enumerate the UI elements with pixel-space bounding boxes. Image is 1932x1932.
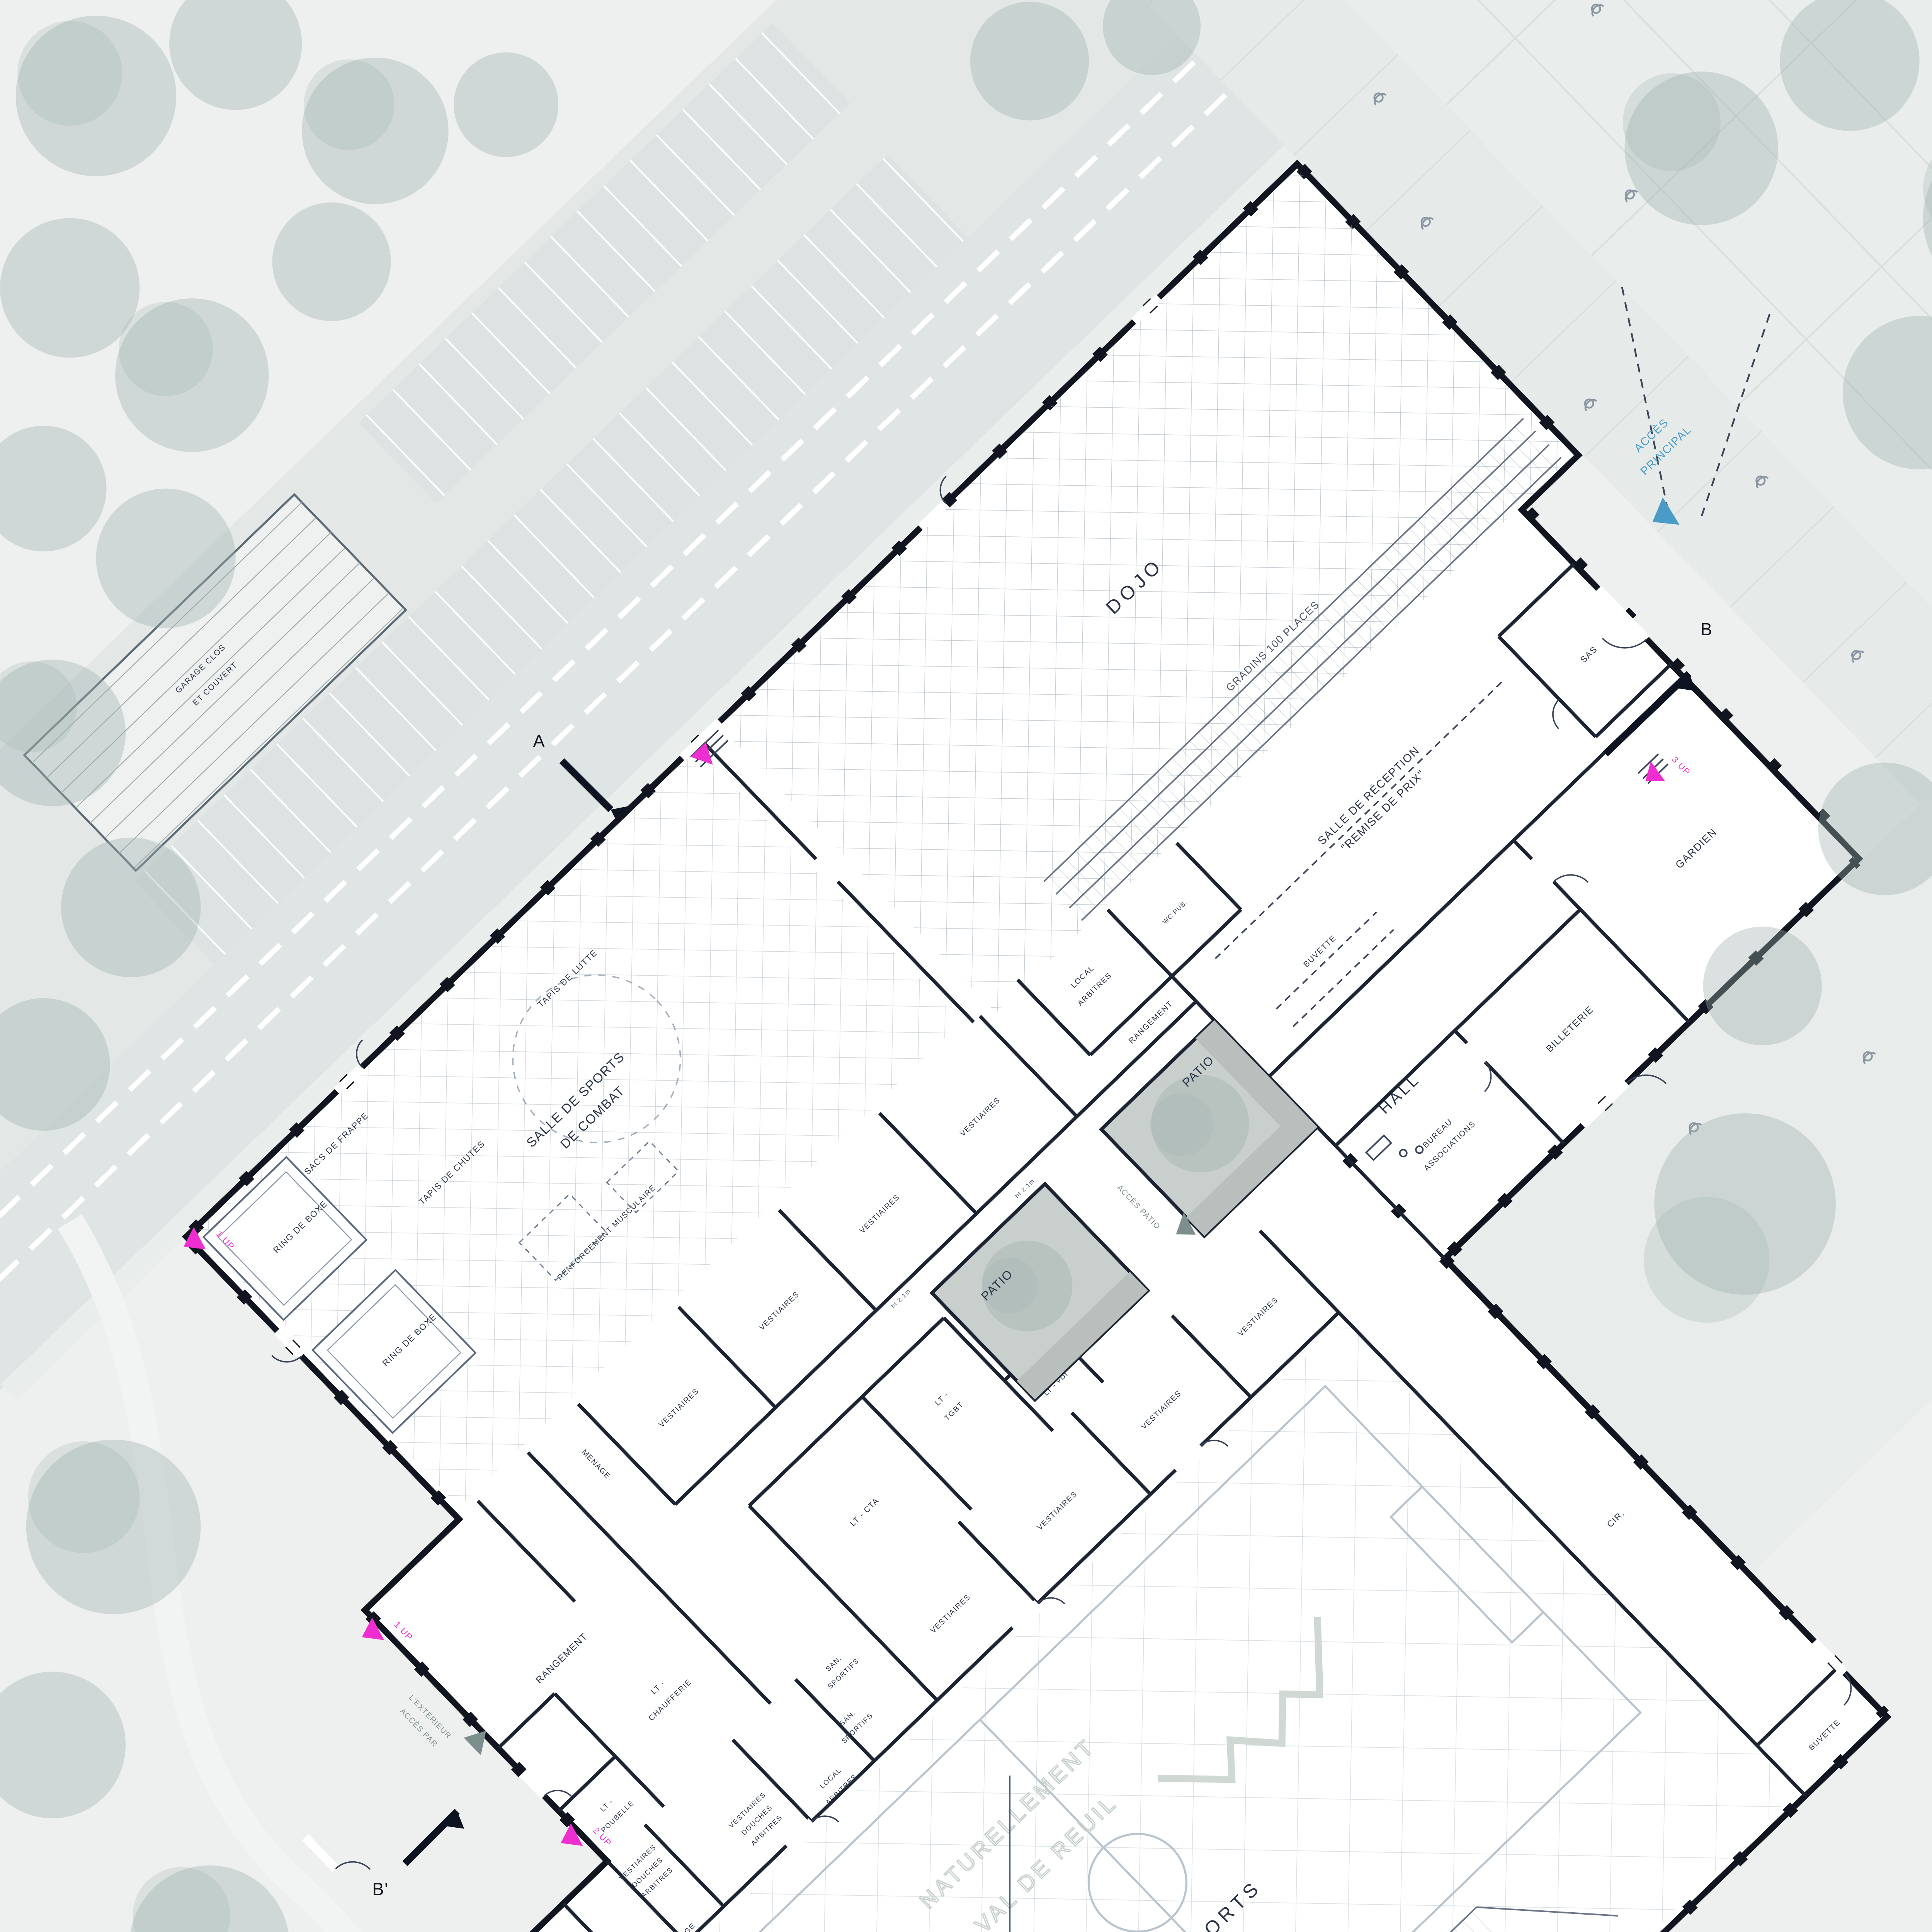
section-label-a: A [533, 731, 546, 751]
section-label-b: B [1701, 619, 1713, 639]
site-plan: GARAGE CLOS ET COUVERT [0, 0, 1932, 1932]
section-label-b2: B' [372, 1879, 388, 1899]
label-acces-ext-w1: ACCÈS PAR [398, 1707, 440, 1749]
